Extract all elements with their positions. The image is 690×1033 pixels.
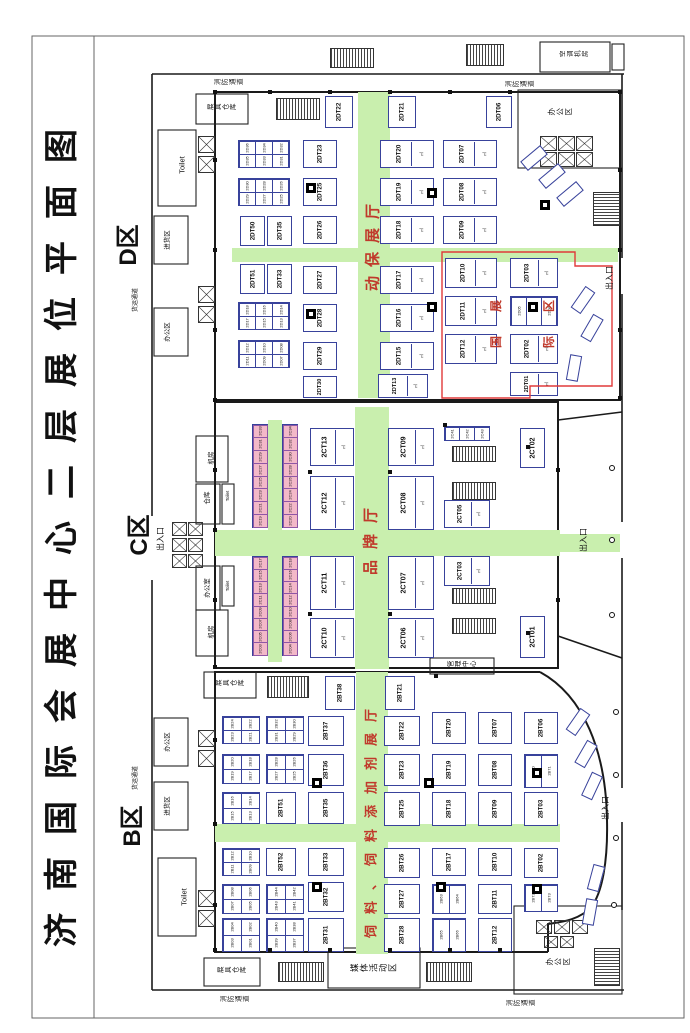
stairs-icon	[452, 588, 496, 604]
mini-booth: 2B11	[223, 862, 242, 876]
wall-dot	[448, 90, 452, 94]
booth-2DT22: 2DT22	[325, 96, 353, 128]
booth-2BT26: 2BT26	[384, 848, 420, 878]
mini-booth-label: 2C08	[288, 620, 293, 630]
mini-booth-label: 2B07	[230, 901, 235, 910]
booth-2BT12: 2BT12	[478, 918, 512, 952]
mini-booth: 2B07	[223, 899, 242, 914]
booth-2BT10: 2BT10	[478, 848, 512, 876]
mini-booth: 2B73	[541, 885, 558, 912]
mini-booth: 2C32	[283, 437, 298, 451]
booth-2DT35: 2DT35	[267, 216, 292, 246]
booth-label: 2DT02	[523, 340, 530, 359]
booth-label: 2DT10	[460, 264, 467, 283]
column-marker	[528, 302, 538, 312]
booth-area-note: ㎡	[482, 271, 488, 275]
booth-2BT37: 2BT37	[308, 716, 344, 746]
mini-booth: 2D12	[239, 341, 257, 355]
booth-label: 2BT22	[399, 722, 406, 741]
booth-label: 2BT27	[399, 890, 406, 909]
hall-name: 品牌厅	[364, 497, 379, 575]
mini-booth-label: 2D07	[278, 356, 283, 366]
booth-2CT11: 2CT11㎡	[310, 556, 354, 610]
booth-label: 2BT17	[446, 853, 453, 872]
wall-dot	[308, 470, 312, 474]
booth-2DT29: 2DT29	[303, 342, 337, 370]
booth-area-note: ㎡	[420, 636, 426, 640]
booth-label: 2BT02	[538, 854, 545, 873]
mini-booth: 2D09	[255, 354, 273, 368]
mini-booth: 2C07	[253, 618, 268, 631]
mini-booth-label: 2B21	[248, 732, 253, 741]
booth-label: 2DT11	[460, 302, 467, 320]
mini-booth-label: 2B39	[274, 938, 279, 947]
mini-booth-label: 2C03	[258, 644, 263, 654]
mini-booth: 2C10	[283, 606, 298, 619]
booth-label: 2BT21	[397, 684, 404, 703]
mini-booth: 2D13	[272, 316, 290, 330]
mini-booth-label: 2C18	[288, 558, 293, 568]
mini-booth-label: 2B32	[274, 719, 279, 728]
booth-label: 2BT06	[538, 719, 545, 738]
booth-2BT22: 2BT22	[384, 716, 420, 746]
mini-booth-label: 2C24	[288, 490, 293, 500]
elevator-icon	[554, 920, 570, 934]
booth-cluster: 2B652B66	[432, 918, 466, 952]
mini-booth-label: 2D08	[278, 343, 283, 353]
facility-label: 办公区	[547, 108, 573, 116]
mini-booth-label: 2B01	[248, 938, 253, 947]
mini-booth-label: 2B19	[230, 771, 235, 780]
booth-label: 2BT25	[399, 800, 406, 819]
wall-dot	[618, 248, 622, 252]
mini-booth-label: 2D10	[261, 343, 266, 353]
booth-2DT30: 2DT30	[303, 376, 337, 398]
mini-booth-label: 2D31	[278, 156, 283, 166]
booth-cluster: 2C412C422C43	[444, 426, 490, 441]
booth-2DT50: 2DT50	[240, 216, 265, 246]
mini-booth: 2C15	[253, 569, 268, 582]
mini-booth: 2C25	[253, 476, 268, 490]
booth-cluster: 2B282B262B272B25	[266, 754, 304, 784]
facility-label: 消防通道	[220, 998, 250, 1005]
mini-booth: 2B24	[223, 717, 242, 731]
mini-booth-label: 2B71	[547, 766, 552, 775]
elevator-icon	[576, 136, 593, 151]
booth-2BT06: 2BT06	[524, 712, 558, 744]
facility-label: 货运通道	[133, 288, 139, 312]
mini-booth-label: 2C43	[479, 429, 484, 439]
booth-2DT09: 2DT09㎡	[443, 216, 497, 244]
mini-booth-label: 2D11	[245, 356, 250, 365]
mini-booth-label: 2B31	[274, 732, 279, 741]
hall-name: 国展	[490, 276, 502, 348]
booth-area-note: ㎡	[420, 501, 426, 505]
mini-booth: 2B22	[241, 717, 260, 731]
mini-booth: 2D32	[272, 141, 290, 155]
facility-label: 空调机房	[559, 53, 589, 60]
booth-2BT33: 2BT33	[308, 848, 344, 876]
booth-cluster: 2D122D102D082D112D092D07	[238, 340, 290, 368]
mini-booth: 2D14	[272, 303, 290, 317]
booth-label: 2DT50	[249, 222, 256, 241]
booth-2CT05: 2CT05㎡	[444, 500, 490, 528]
booth-2BT52: 2BT52	[266, 848, 296, 876]
booth-area-note: ㎡	[419, 190, 425, 194]
booth-2DT51: 2DT51	[240, 264, 265, 294]
booth-2CT03: 2CT03㎡	[444, 556, 490, 586]
mini-booth-label: 2C28	[288, 465, 293, 475]
stairs-icon	[593, 192, 620, 226]
stairs-icon	[267, 676, 309, 698]
mini-booth-label: 2C25	[258, 478, 263, 488]
mini-booth-label: 2D30	[245, 181, 250, 191]
angled-booth	[587, 864, 605, 892]
mini-booth: 2C08	[283, 618, 298, 631]
booth-2DT16: 2DT16㎡	[380, 304, 434, 332]
booth-cluster: 2B042B022B032B01	[222, 918, 260, 952]
booth-label: 2DT28	[317, 309, 324, 328]
booth-area-note: ㎡	[341, 636, 347, 640]
facility-label: 办公区	[165, 732, 172, 752]
booth-area-note: ㎡	[419, 316, 425, 320]
mini-booth-label: 2C14	[288, 583, 293, 593]
booth-area-note: ㎡	[341, 501, 347, 505]
booth-label: 2BT19	[446, 761, 453, 780]
wall-dot	[213, 598, 217, 602]
mini-booth: 2B32	[267, 717, 286, 731]
column-marker	[312, 882, 322, 892]
mini-booth-label: 2C09	[258, 607, 263, 617]
mini-booth-label: 2D13	[278, 318, 283, 328]
mini-booth-label: 2B05	[248, 901, 253, 910]
mini-booth-label: 2B24	[230, 719, 235, 728]
booth-2CT01: 2CT01	[520, 616, 545, 658]
booth-2CT10: 2CT10㎡	[310, 618, 354, 658]
mini-booth-label: 2B44	[274, 887, 279, 896]
angled-booth	[556, 181, 584, 207]
mini-booth-label: 2C31	[258, 439, 263, 449]
stairs-icon	[426, 962, 472, 982]
mini-booth: 2C22	[283, 501, 298, 515]
aisle	[215, 530, 560, 556]
wall-dot	[213, 822, 217, 826]
mini-booth-label: 2D18	[245, 305, 250, 315]
booth-label: 2DT06	[496, 103, 503, 122]
mini-booth: 2B05	[241, 899, 260, 914]
booth-label: 2CT06	[400, 627, 407, 648]
booth-label: 2BT07	[492, 719, 499, 738]
booth-label: 2BT32	[323, 888, 330, 907]
booth-2BT19: 2BT19	[432, 754, 466, 786]
mini-booth: 2D11	[239, 354, 257, 368]
booth-label: 2DT17	[395, 271, 402, 290]
booth-label: 2DT25	[317, 183, 324, 202]
mini-booth: 2C21	[253, 501, 268, 515]
mini-booth: 2B10	[241, 849, 260, 863]
column-marker	[306, 309, 316, 319]
booth-2DT13: 2DT13㎡	[378, 374, 428, 398]
mini-booth: 2D15	[255, 316, 273, 330]
mini-booth-label: 2D16	[261, 305, 266, 315]
booth-cluster: 2B442B422B432B41	[266, 884, 304, 914]
booth-2BT18: 2BT18	[432, 792, 466, 826]
wall-dot	[213, 665, 217, 669]
wall-dot	[328, 948, 332, 952]
mini-booth-label: 2C15	[258, 571, 263, 581]
booth-2BT02: 2BT02	[524, 848, 558, 878]
mini-booth: 2D17	[239, 316, 257, 330]
booth-label: 2DT01	[524, 376, 530, 393]
mini-booth-label: 2D32	[278, 143, 283, 153]
mini-booth: 2B37	[285, 935, 304, 952]
booth-label: 2BT35	[323, 799, 330, 818]
elevator-icon	[188, 554, 203, 568]
mini-booth: 2B23	[223, 730, 242, 744]
mini-booth-label: 2B30	[292, 719, 297, 728]
angled-booth	[566, 708, 591, 736]
booth-label: 2BT10	[492, 853, 499, 872]
mini-booth-label: 2C32	[288, 439, 293, 449]
angled-booth	[571, 286, 596, 314]
mini-booth-label: 2B18	[248, 757, 253, 766]
mini-booth: 2C12	[283, 593, 298, 606]
mini-booth-label: 2B66	[455, 930, 460, 939]
mini-booth-label: 2B12	[230, 851, 235, 860]
wall-dot	[443, 423, 447, 427]
wall-dot	[213, 90, 217, 94]
wall-dot	[268, 948, 272, 952]
mini-booth: 2C42	[459, 427, 475, 441]
column-marker	[532, 884, 542, 894]
wall-dot	[508, 90, 512, 94]
booth-label: 2BT26	[399, 854, 406, 873]
mini-booth-label: 2B26	[292, 757, 297, 766]
mini-booth: 2B20	[223, 755, 242, 770]
wall-dot	[498, 948, 502, 952]
booth-cluster: 2B162B142B152B13	[222, 792, 260, 824]
mini-booth: 2C33	[253, 425, 268, 439]
mini-booth: 2D26	[272, 179, 290, 193]
facility-label: Toilet	[180, 888, 188, 906]
facility-label: 媒体活动区	[350, 964, 398, 973]
mini-booth: 2B08	[223, 885, 242, 900]
mini-booth-label: 2C20	[288, 516, 293, 526]
booth-label: 2DT09	[458, 221, 465, 240]
booth-label: 2DT29	[317, 347, 324, 366]
booth-label: 2CT01	[529, 626, 536, 647]
door-circle	[609, 465, 615, 471]
booth-2DT26: 2DT26	[303, 216, 337, 244]
mini-booth-label: 2B15	[230, 811, 235, 820]
booth-label: 2BT36	[323, 761, 330, 780]
mini-booth-label: 2D15	[261, 318, 266, 328]
wall-dot	[388, 90, 392, 94]
mini-booth-label: 2C04	[288, 644, 293, 654]
booth-label: 2DT30	[317, 379, 323, 396]
mini-booth: 2B15	[223, 808, 242, 824]
booth-label: 2DT35	[276, 222, 283, 241]
wall-dot	[268, 90, 272, 94]
mini-booth: 2B12	[223, 849, 242, 863]
booth-label: 2CT08	[400, 492, 407, 513]
booth-cluster: 2D182D162D142D172D152D13	[238, 302, 290, 330]
mini-booth: 2B42	[285, 885, 304, 900]
facility-label: 仓库	[205, 492, 212, 505]
booth-label: 2BT33	[323, 853, 330, 872]
facility-label: 办公区	[165, 322, 172, 342]
wall-dot	[213, 948, 217, 952]
booth-label: 2CT02	[529, 437, 536, 458]
mini-booth-label: 2B22	[248, 719, 253, 728]
booth-2DT21: 2DT21	[388, 96, 416, 128]
booth-label: 2BT31	[323, 926, 330, 945]
booth-2DT17: 2DT17㎡	[380, 266, 434, 294]
wall-dot	[434, 674, 438, 678]
angled-booth	[574, 740, 597, 769]
wall-dot	[618, 328, 622, 332]
mini-booth: 2D16	[255, 303, 273, 317]
mini-booth-label: 2C33	[258, 427, 263, 437]
booth-2CT08: 2CT08㎡	[388, 476, 434, 530]
mini-booth-label: 2B11	[230, 864, 235, 873]
mini-booth-label: 2B23	[230, 732, 235, 741]
mini-booth-label: 2B03	[230, 938, 235, 947]
mini-booth: 2C05	[253, 630, 268, 643]
mini-booth-label: 2C21	[258, 503, 263, 513]
wall-dot	[618, 90, 622, 94]
facility-label: 进货区	[165, 796, 172, 816]
booth-2BT27: 2BT27	[384, 884, 420, 914]
facility-label: C区	[128, 514, 152, 555]
wall-dot	[213, 328, 217, 332]
mini-booth-label: 2B42	[292, 887, 297, 896]
door-circle	[613, 772, 619, 778]
column-marker	[540, 200, 550, 210]
booth-2DT18: 2DT18㎡	[380, 216, 434, 244]
elevator-icon	[558, 136, 575, 151]
wall-dot	[213, 398, 217, 402]
facility-label: 展具仓库	[215, 682, 245, 689]
booth-2BT08: 2BT08	[478, 754, 512, 786]
mini-booth: 2C06	[283, 630, 298, 643]
mini-booth: 2C31	[253, 437, 268, 451]
booth-label: 2CT12	[322, 492, 329, 513]
mini-booth-label: 2B10	[248, 851, 253, 860]
booth-label: 2CT07	[400, 572, 407, 593]
mini-booth-label: 2C22	[288, 503, 293, 513]
facility-label: 机房	[209, 626, 216, 639]
booth-area-note: ㎡	[476, 569, 482, 573]
booth-2DT23: 2DT23	[303, 140, 337, 168]
mini-booth: 2C28	[283, 463, 298, 477]
elevator-icon	[172, 554, 187, 568]
mini-booth: 2C41	[445, 427, 461, 441]
mini-booth: 2B41	[285, 899, 304, 914]
mini-booth: 2B14	[241, 793, 260, 809]
booth-label: 2BT52	[278, 853, 285, 872]
aisle	[232, 248, 618, 262]
wall-dot	[213, 248, 217, 252]
floor-plan: 济南国际会展中心二层展位平面图 2DT222DT212DT062DT502DT3…	[0, 0, 690, 1033]
booth-2DT19: 2DT19㎡	[380, 178, 434, 206]
facility-label: Toilet	[226, 491, 231, 502]
facility-label: 机房	[209, 452, 216, 465]
mini-booth: 2B44	[267, 885, 286, 900]
aisle	[215, 824, 560, 842]
wall-dot	[556, 598, 560, 602]
mini-booth: 2B13	[241, 808, 260, 824]
elevator-icon	[198, 750, 215, 767]
elevator-icon	[198, 136, 215, 153]
booth-area-note: ㎡	[482, 152, 488, 156]
booth-area-note: ㎡	[420, 581, 426, 585]
mini-booth: 2B27	[267, 769, 286, 784]
facility-label: 办公区	[545, 958, 571, 966]
mini-booth-label: 2C17	[258, 558, 263, 568]
elevator-icon	[188, 522, 203, 536]
column-marker	[436, 882, 446, 892]
mini-booth: 2B26	[285, 755, 304, 770]
wall-dot	[328, 90, 332, 94]
facility-label: 出入口	[602, 796, 610, 820]
booth-label: 2DT33	[276, 270, 283, 289]
booth-cluster: 2B122B102B112B09	[222, 848, 260, 876]
booth-label: 2BT28	[399, 926, 406, 945]
mini-booth: 2C19	[253, 514, 268, 528]
wall-dot	[618, 396, 622, 400]
mini-booth: 2B19	[223, 769, 242, 784]
booth-area-note: ㎡	[544, 271, 550, 275]
column-marker	[424, 778, 434, 788]
door-circle	[611, 902, 617, 908]
booth-label: 2DT27	[317, 271, 324, 290]
mini-booth: 2D08	[272, 341, 290, 355]
booth-label: 2DT12	[460, 340, 467, 359]
booth-label: 2BT18	[446, 800, 453, 819]
mini-booth: 2B31	[267, 730, 286, 744]
wall-dot	[213, 903, 217, 907]
mini-booth: 2B03	[223, 935, 242, 952]
booth-area-note: ㎡	[413, 384, 419, 388]
wall-dot	[308, 612, 312, 616]
booth-label: 2DT16	[395, 309, 402, 328]
mini-booth-label: 2C13	[258, 583, 263, 593]
column-marker	[532, 768, 542, 778]
facility-label: Toilet	[178, 156, 186, 174]
mini-booth-label: 2B43	[274, 901, 279, 910]
booth-2BT03: 2BT03	[524, 792, 558, 826]
mini-booth: 2B01	[241, 935, 260, 952]
booth-2BT21: 2BT21	[385, 676, 415, 710]
column-marker	[312, 778, 322, 788]
mini-booth: 2D36	[239, 141, 257, 155]
booth-2DT08: 2DT08㎡	[443, 178, 497, 206]
mini-booth: 2C17	[253, 557, 268, 570]
booth-cluster: 2B322B302B312B29	[266, 716, 304, 744]
mini-booth-label: 2D17	[245, 318, 250, 328]
booth-label: 2BT38	[337, 684, 344, 703]
booth-cluster: 2B402B382B392B37	[266, 918, 304, 952]
booth-2DT06: 2DT06	[486, 96, 512, 128]
booth-2CT09: 2CT09㎡	[388, 428, 434, 466]
booth-2DT15: 2DT15㎡	[380, 342, 434, 370]
facility-label: D区	[117, 224, 141, 265]
mini-booth: 2C14	[283, 581, 298, 594]
booth-label: 2BT11	[492, 890, 499, 908]
angled-booth	[582, 898, 598, 926]
mini-booth: 2B04	[223, 919, 242, 936]
